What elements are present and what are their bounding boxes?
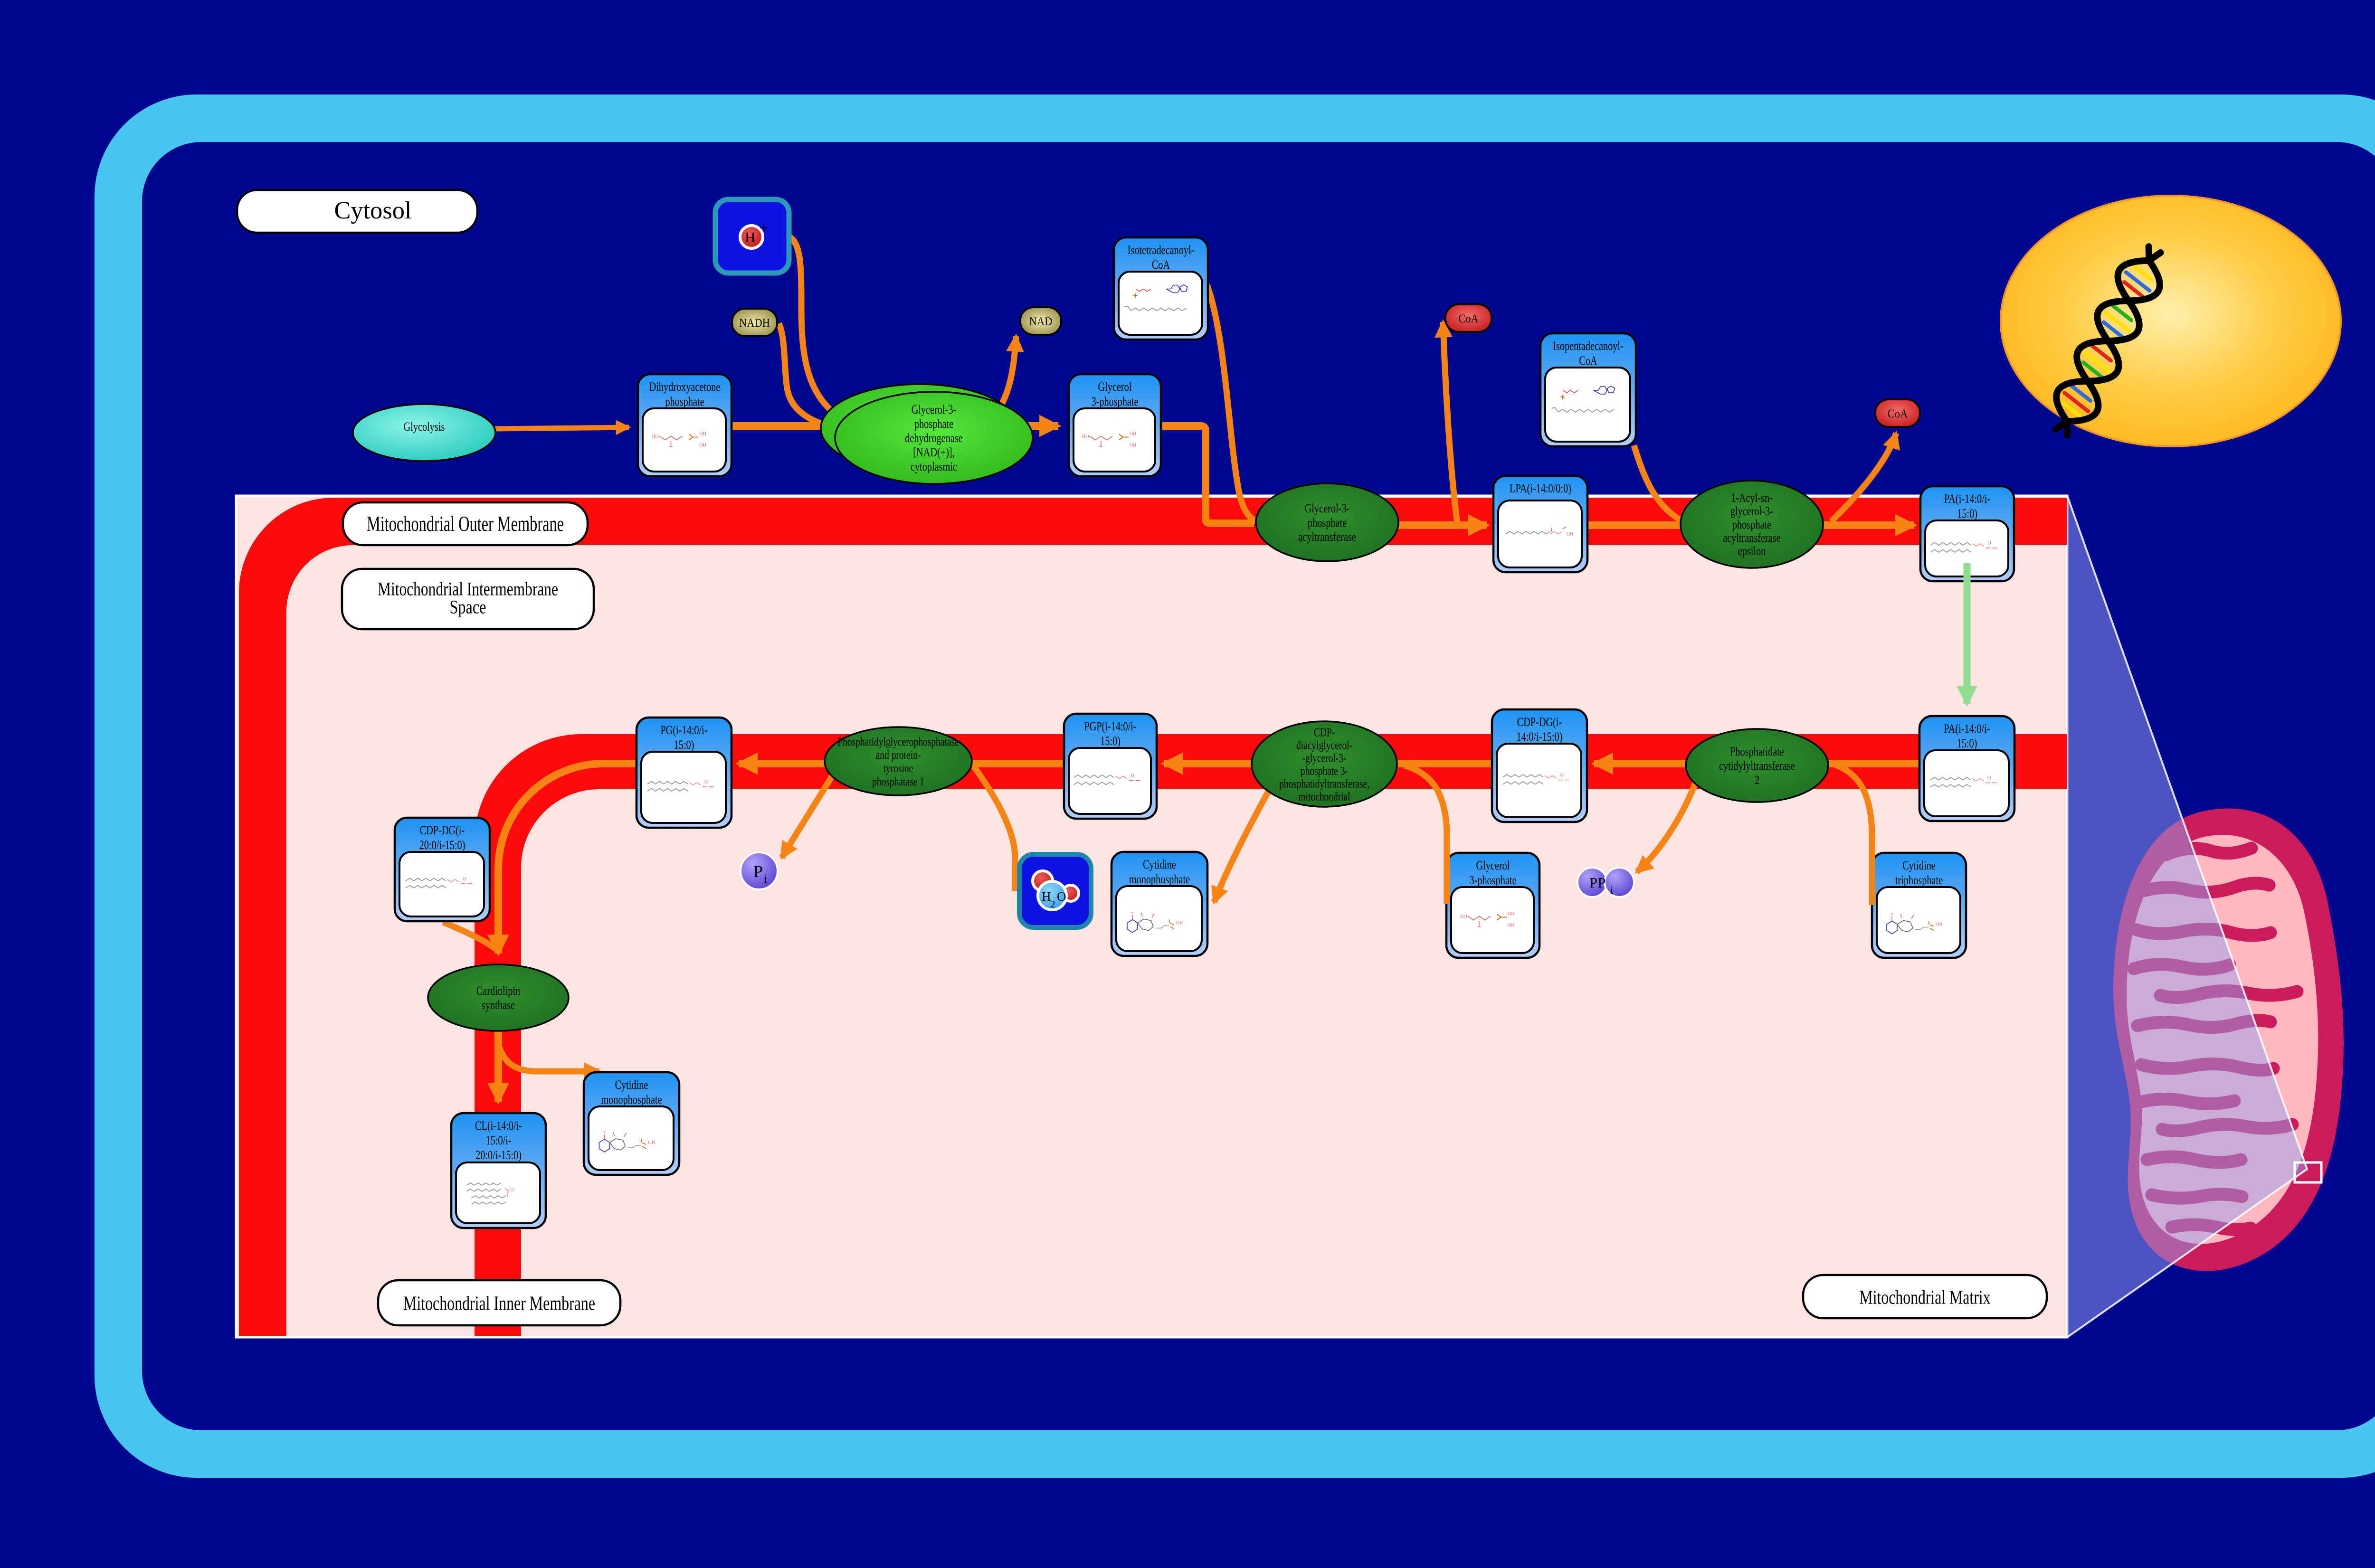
svg-text:P: P [753, 862, 763, 881]
svg-text:LPA(i-14:0/0:0): LPA(i-14:0/0:0) [1510, 482, 1571, 496]
svg-text:CoA: CoA [1152, 258, 1170, 272]
svg-text:Mitochondrial Outer Membrane: Mitochondrial Outer Membrane [367, 512, 564, 536]
svg-text:tyrosine: tyrosine [883, 762, 913, 775]
svg-text:20:0/i-15:0): 20:0/i-15:0) [419, 839, 465, 852]
svg-text:14:0/i-15:0): 14:0/i-15:0) [1517, 730, 1563, 744]
svg-text:phosphate: phosphate [1308, 516, 1347, 530]
svg-text:Cytidine: Cytidine [1143, 858, 1176, 872]
svg-text:i: i [764, 872, 767, 886]
svg-text:3-phosphate: 3-phosphate [1469, 874, 1516, 888]
svg-text:15:0): 15:0) [1957, 737, 1977, 751]
svg-text:acyltransferase: acyltransferase [1723, 531, 1781, 545]
svg-text:Cardiolipin: Cardiolipin [476, 984, 521, 998]
svg-text:Glycolysis: Glycolysis [404, 420, 445, 434]
svg-text:PA(i-14:0/i-: PA(i-14:0/i- [1944, 492, 1990, 506]
svg-text:O: O [1131, 774, 1134, 779]
svg-text:Glycerol-3-: Glycerol-3- [1305, 502, 1350, 516]
svg-text:PGP(i-14:0/i-: PGP(i-14:0/i- [1084, 720, 1136, 734]
svg-text:15:0): 15:0) [1100, 735, 1121, 748]
svg-text:glycerol-3-: glycerol-3- [1730, 505, 1773, 519]
svg-text:Dihydroxyacetone: Dihydroxyacetone [649, 380, 721, 394]
svg-text:phosphatidyltransferase,: phosphatidyltransferase, [1279, 777, 1369, 790]
svg-text:CoA: CoA [1458, 312, 1478, 325]
svg-text:diacylglycerol-: diacylglycerol- [1296, 738, 1352, 752]
svg-text:Cytosol: Cytosol [334, 197, 412, 224]
svg-text:1-Acyl-sn-: 1-Acyl-sn- [1731, 491, 1773, 505]
svg-text:Mitochondrial Matrix: Mitochondrial Matrix [1860, 1286, 1991, 1308]
svg-text:cytoplasmic: cytoplasmic [911, 460, 957, 474]
svg-text:O: O [511, 1188, 514, 1193]
svg-text:OH: OH [1176, 921, 1183, 926]
svg-text:OH: OH [1567, 532, 1573, 537]
svg-text:OH: OH [1130, 432, 1136, 437]
svg-text:HO: HO [652, 435, 659, 440]
svg-text:epsilon: epsilon [1738, 545, 1766, 558]
svg-text:monophosphate: monophosphate [601, 1093, 662, 1107]
svg-text:H: H [745, 229, 755, 246]
svg-text:CDP-DG(i-: CDP-DG(i- [1517, 716, 1562, 729]
svg-text:15:0/i-: 15:0/i- [485, 1134, 511, 1148]
svg-text:2: 2 [1755, 774, 1759, 787]
svg-text:acyltransferase: acyltransferase [1298, 530, 1356, 544]
svg-text:i: i [1610, 884, 1613, 896]
svg-text:15:0): 15:0) [1957, 507, 1977, 521]
svg-text:O: O [1057, 889, 1066, 904]
svg-text:Glycerol: Glycerol [1476, 859, 1510, 873]
svg-text:-glycerol-3-: -glycerol-3- [1302, 751, 1346, 765]
svg-text:3-phosphate: 3-phosphate [1091, 395, 1138, 409]
svg-text:Phosphatidate: Phosphatidate [1730, 745, 1784, 759]
svg-text:Glycerol: Glycerol [1098, 380, 1132, 394]
svg-text:CDP-: CDP- [1314, 726, 1335, 739]
svg-text:PG(i-14:0/i-: PG(i-14:0/i- [660, 724, 707, 737]
svg-text:15:0): 15:0) [674, 738, 694, 752]
svg-text:phosphate: phosphate [665, 395, 704, 409]
svg-text:OH: OH [700, 432, 706, 437]
svg-text:phosphate: phosphate [914, 417, 953, 431]
svg-text:+: + [759, 218, 769, 237]
svg-text:CL(i-14:0/i-: CL(i-14:0/i- [475, 1119, 522, 1133]
svg-text:Cytidine: Cytidine [615, 1078, 648, 1092]
svg-text:Phosphatidylglycerophosphatase: Phosphatidylglycerophosphatase [837, 735, 959, 748]
svg-text:and protein-: and protein- [876, 748, 921, 762]
svg-text:CoA: CoA [1579, 354, 1597, 368]
svg-text:OH: OH [1936, 922, 1942, 927]
svg-text:O: O [1988, 541, 1991, 546]
svg-text:OH: OH [1508, 912, 1514, 917]
svg-text:O: O [1560, 773, 1563, 778]
svg-text:HO: HO [1460, 915, 1467, 920]
svg-text:[NAD(+)],: [NAD(+)], [913, 446, 954, 460]
svg-text:Isopentadecanoyl-: Isopentadecanoyl- [1553, 340, 1624, 353]
svg-text:2: 2 [1050, 898, 1055, 910]
svg-text:PA(i-14:0/i-: PA(i-14:0/i- [1944, 722, 1990, 736]
svg-text:O: O [704, 780, 708, 785]
svg-text:cytidylyltransferase: cytidylyltransferase [1719, 759, 1795, 773]
svg-text:H: H [1042, 889, 1051, 904]
svg-text:Cytidine: Cytidine [1902, 859, 1936, 873]
svg-text:HO: HO [1082, 435, 1089, 440]
svg-text:triphosphate: triphosphate [1895, 874, 1943, 888]
svg-text:CDP-DG(i-: CDP-DG(i- [420, 824, 465, 838]
svg-text:PP: PP [1589, 874, 1605, 891]
svg-text:dehydrogenase: dehydrogenase [905, 432, 963, 445]
svg-text:OH: OH [648, 1140, 655, 1145]
svg-text:phosphatase 1: phosphatase 1 [872, 775, 924, 788]
svg-text:OH: OH [1508, 923, 1514, 928]
svg-text:synthase: synthase [482, 999, 515, 1012]
svg-text:Space: Space [450, 596, 486, 618]
svg-text:NAD: NAD [1029, 315, 1053, 328]
svg-text:Isotetradecanoyl-: Isotetradecanoyl- [1128, 244, 1195, 257]
svg-text:O: O [463, 877, 466, 882]
svg-text:OH: OH [1130, 443, 1136, 448]
svg-text:phosphate 3-: phosphate 3- [1301, 764, 1348, 777]
svg-text:CoA: CoA [1888, 407, 1908, 420]
svg-text:NADH: NADH [739, 317, 770, 330]
svg-text:monophosphate: monophosphate [1129, 873, 1190, 887]
svg-text:Glycerol-3-: Glycerol-3- [912, 403, 957, 417]
svg-text:20:0/i-15:0): 20:0/i-15:0) [475, 1149, 522, 1162]
svg-text:OH: OH [700, 443, 706, 448]
svg-text:Mitochondrial Inner Membrane: Mitochondrial Inner Membrane [403, 1293, 595, 1315]
svg-text:mitochondrial: mitochondrial [1298, 790, 1350, 803]
svg-text:O: O [1987, 776, 1991, 781]
svg-text:phosphate: phosphate [1732, 518, 1771, 532]
